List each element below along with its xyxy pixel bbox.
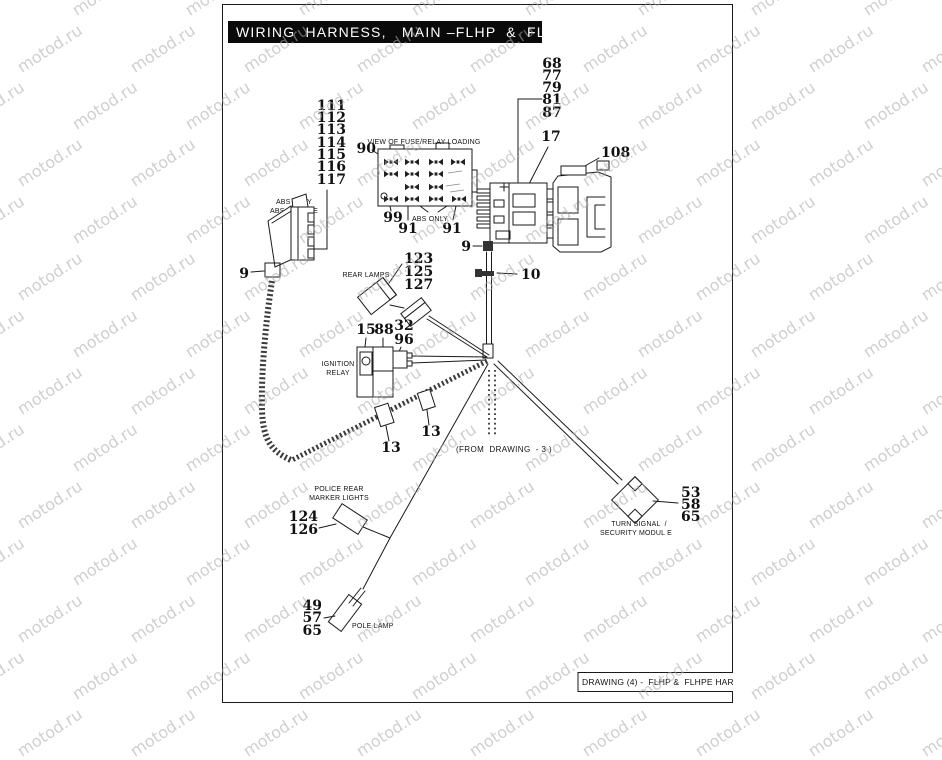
- callout-117: 117: [317, 172, 346, 188]
- callout-9-module: 9: [239, 266, 249, 282]
- turn-signal-label-1: TURN SIGNAL /: [611, 521, 666, 528]
- from-drawing-label: (FROM DRAWING - 3 ): [456, 445, 552, 454]
- turn-signal-label-2: SECURITY MODUL E: [600, 530, 672, 537]
- watermark-text: motod.ru: [353, 705, 425, 760]
- callout-group-harness-111-117: 111 112 113 114 115 116 117: [313, 98, 346, 249]
- watermark-text: motod.ru: [692, 705, 764, 760]
- watermark-text: motod.ru: [579, 705, 651, 760]
- callout-126: 126: [289, 522, 318, 538]
- watermark-text: motod.ru: [918, 705, 942, 760]
- wiring-harness-diagram: WIRING HARNESS, MAIN –FLHP & FLHPE 111 1…: [0, 0, 942, 707]
- callout-13b: 13: [421, 424, 440, 440]
- watermark-text: motod.ru: [466, 705, 538, 760]
- watermark-text: motod.ru: [14, 705, 86, 760]
- callout-108: 108: [601, 145, 630, 161]
- rear-lamps: REAR LAMPS 123 125 127: [342, 251, 489, 357]
- police-connector: [333, 504, 367, 535]
- police-label-2: MARKER LIGHTS: [309, 495, 369, 502]
- fuse-relay-box: VIEW OF FUSE/RELAY LOADING 90 99 91 ABS …: [357, 139, 481, 237]
- callout-90: 90: [357, 141, 377, 157]
- pole-lamp-label: POLE LAMP: [352, 623, 394, 630]
- callout-88: 88: [374, 322, 393, 338]
- conduit-wire: [262, 281, 291, 460]
- callout-65-pole: 65: [303, 623, 322, 639]
- title-bar: WIRING HARNESS, MAIN –FLHP & FLHPE: [228, 21, 578, 43]
- watermark-text: motod.ru: [240, 705, 312, 760]
- footer-label-box: DRAWING (4) - FLHP & FLHPE HARNES: [578, 673, 752, 692]
- from-drawing-wire: (FROM DRAWING - 3 ): [456, 370, 552, 454]
- callout-96: 96: [394, 332, 413, 348]
- abs-module: ABS ONLY ABS MODULE 9: [239, 194, 318, 460]
- wire-connector-9: [483, 241, 493, 251]
- fuse-box-label: VIEW OF FUSE/RELAY LOADING: [367, 139, 480, 146]
- callout-87: 87: [542, 105, 561, 121]
- callout-127: 127: [404, 277, 433, 293]
- callout-13a: 13: [381, 440, 400, 456]
- footer-label: DRAWING (4) - FLHP & FLHPE HARNES: [582, 677, 752, 687]
- callout-9-wire: 9: [461, 239, 471, 255]
- callout-65-turn: 65: [681, 509, 700, 525]
- callout-91a: 91: [398, 221, 417, 237]
- callout-10: 10: [521, 267, 541, 283]
- watermark-text: motod.ru: [127, 705, 199, 760]
- page-border: [223, 5, 733, 703]
- callout-17: 17: [541, 129, 560, 145]
- main-connector-assembly: 68 77 79 81 87 17 108: [477, 56, 630, 252]
- watermark-text: motod.ru: [805, 705, 877, 760]
- center-wire: 9 10: [461, 239, 540, 358]
- ignition-relay: IGNITION RELAY 15 88 32 96: [322, 318, 486, 397]
- page-title: WIRING HARNESS, MAIN –FLHP & FLHPE: [236, 24, 578, 40]
- callout-15: 15: [356, 322, 375, 338]
- callout-91b: 91: [442, 221, 461, 237]
- ignition-label: IGNITION: [322, 361, 355, 368]
- relay-label: RELAY: [326, 370, 350, 377]
- bolt-10: [475, 269, 482, 277]
- police-label-1: POLICE REAR: [314, 486, 363, 493]
